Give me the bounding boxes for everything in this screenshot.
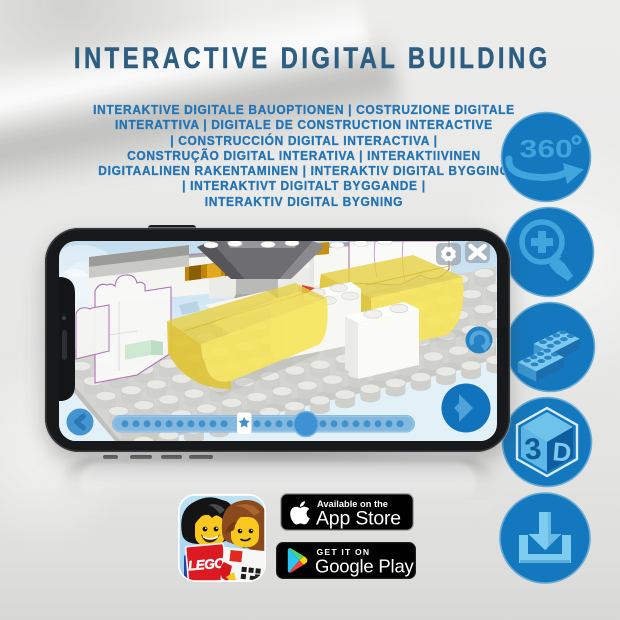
- svg-text:3: 3: [523, 432, 543, 466]
- svg-text:Google Play: Google Play: [315, 556, 415, 577]
- svg-text:D: D: [551, 436, 572, 468]
- svg-text:App Store: App Store: [316, 508, 401, 530]
- svg-text:360: 360: [520, 136, 573, 164]
